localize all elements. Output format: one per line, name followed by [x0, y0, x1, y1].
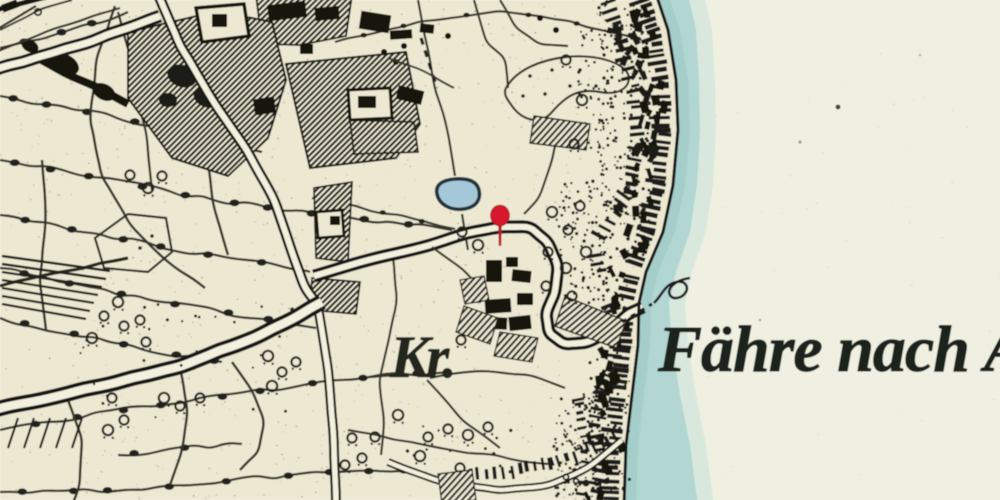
svg-text:Fähre nach: Fähre nach	[657, 313, 969, 386]
svg-text:Kr.: Kr.	[389, 324, 453, 390]
